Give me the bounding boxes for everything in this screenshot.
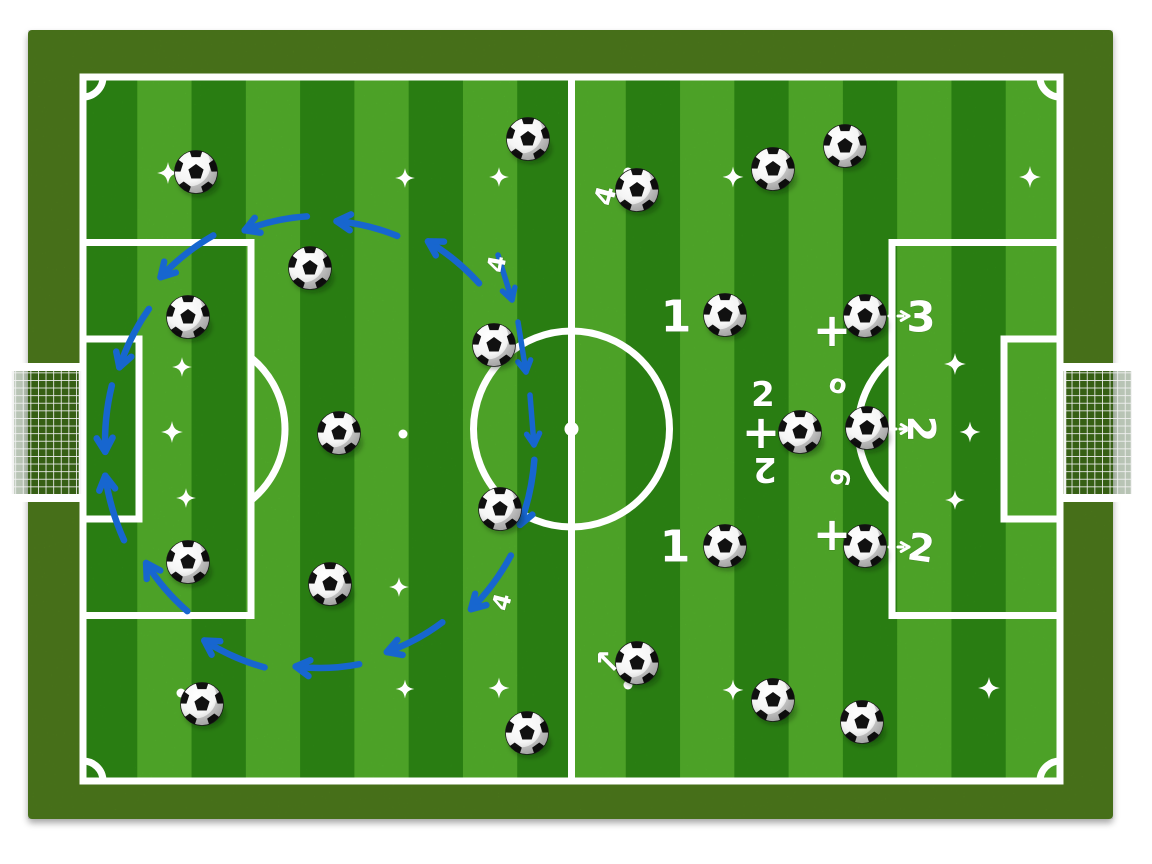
annotation-glyph: 1 bbox=[660, 522, 691, 573]
annotation-glyph: + bbox=[813, 507, 852, 561]
small-white-mark bbox=[399, 430, 408, 439]
annotation-glyph: 2 bbox=[753, 449, 777, 489]
annotation-glyph: 3 bbox=[906, 293, 935, 342]
annotation-glyph: ↖ bbox=[594, 643, 621, 681]
annotation-glyph: 2 bbox=[899, 416, 943, 442]
pitch-canvas: 112+2++322444o6↖ bbox=[0, 0, 1152, 864]
annotation-glyph: + bbox=[813, 303, 852, 357]
soccer-drill-diagram: Soccer training drill diagram: striped f… bbox=[0, 0, 1152, 864]
goal-left bbox=[2, 363, 83, 505]
annotation-glyph: 1 bbox=[661, 292, 692, 343]
goal-right bbox=[1060, 363, 1141, 505]
